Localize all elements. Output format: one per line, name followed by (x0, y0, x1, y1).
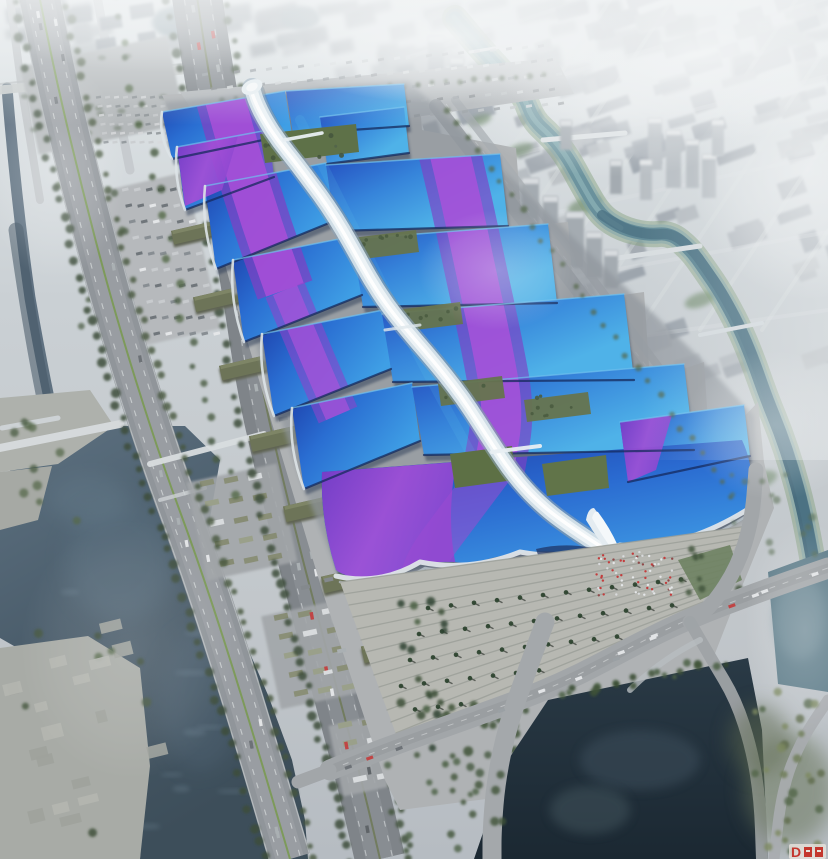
svg-text:D: D (791, 844, 801, 859)
